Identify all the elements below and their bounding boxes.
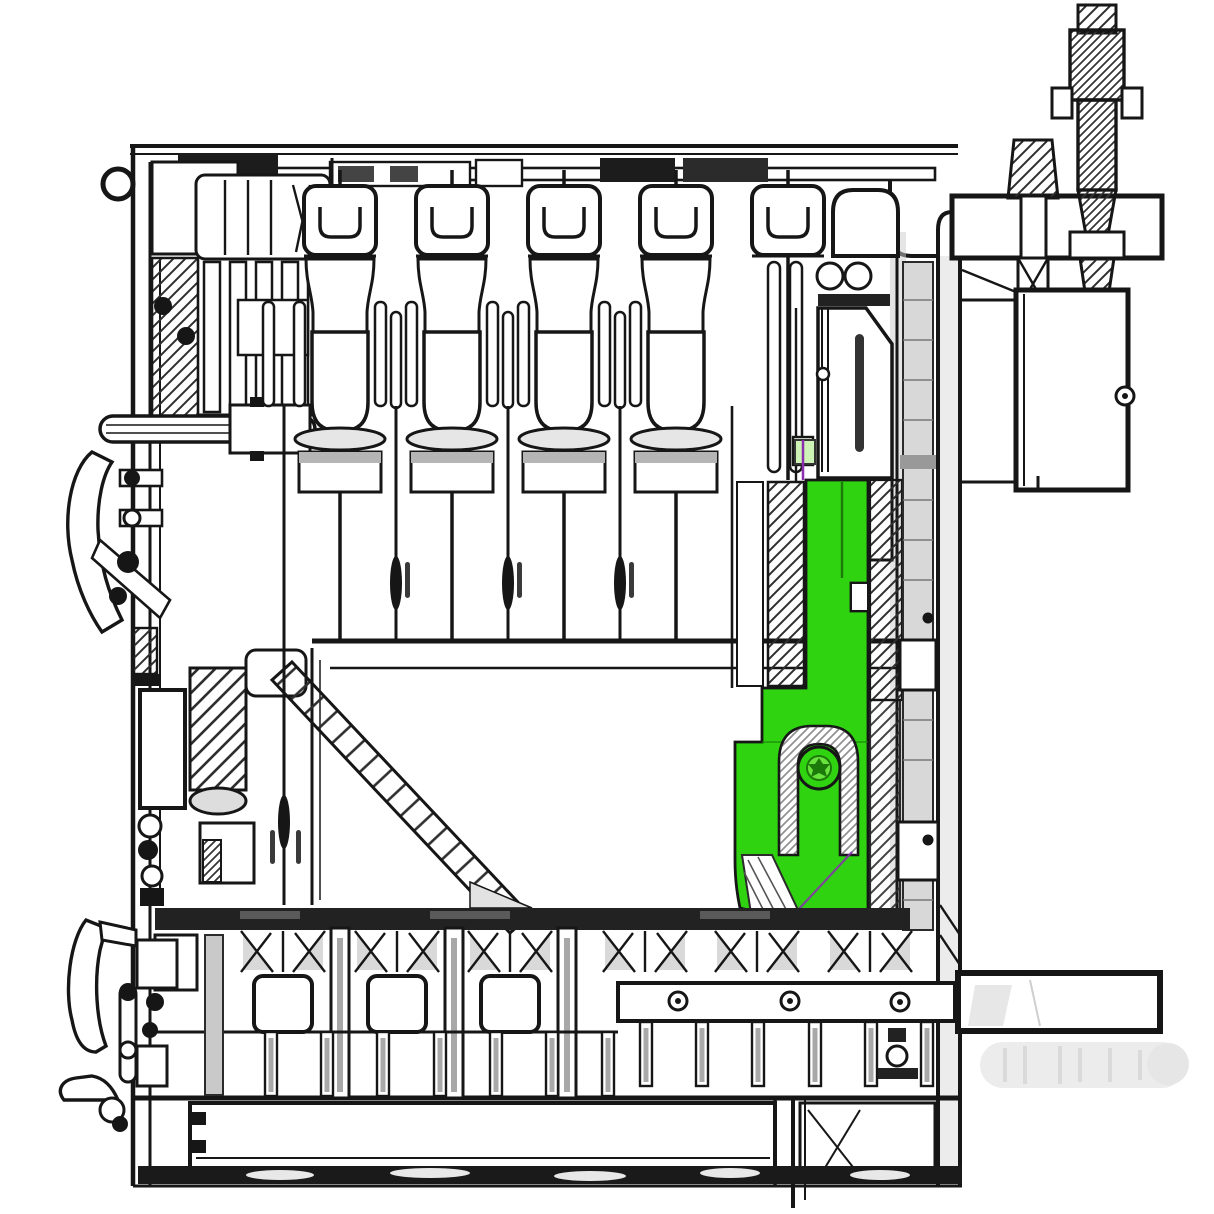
linkage-funnel xyxy=(468,931,552,972)
stud xyxy=(434,1032,446,1096)
stud xyxy=(865,1022,877,1086)
pivot-bolt xyxy=(798,747,840,789)
stud xyxy=(546,1032,558,1096)
valve-box xyxy=(254,976,312,1032)
lever-blade xyxy=(68,920,106,1052)
valve-box xyxy=(481,976,539,1032)
bottom-tray xyxy=(138,1098,962,1208)
stud xyxy=(490,1032,502,1096)
sectional-drawing xyxy=(0,0,1214,1214)
stud xyxy=(377,1032,389,1096)
stud xyxy=(921,1022,933,1086)
lifting-ring xyxy=(103,169,133,199)
ghost-watermark xyxy=(980,1042,1189,1088)
linkage-funnel xyxy=(603,931,687,972)
stud xyxy=(752,1022,764,1086)
upper-hand-lever xyxy=(68,452,170,632)
top-right-assembly xyxy=(938,5,1162,490)
right-guide-band xyxy=(898,262,938,930)
bottom-row xyxy=(155,908,955,1098)
linkage-funnel xyxy=(241,931,325,972)
stud xyxy=(265,1032,277,1096)
lever-blade-small xyxy=(60,1076,118,1100)
valve-box xyxy=(368,976,426,1032)
linkage-funnel xyxy=(715,931,799,972)
stud xyxy=(321,1032,333,1096)
linkage-funnel xyxy=(355,931,439,972)
highlight-tint-block xyxy=(795,440,815,464)
support-post xyxy=(558,928,576,1098)
cylinder-unit xyxy=(631,170,721,640)
cylinder-unit xyxy=(519,170,609,640)
drilled-bar xyxy=(618,983,955,1021)
diagram-canvas xyxy=(0,0,1214,1214)
stud xyxy=(640,1022,652,1086)
support-post xyxy=(445,928,463,1098)
linkage-funnel xyxy=(828,931,912,972)
stud xyxy=(696,1022,708,1086)
stud xyxy=(602,1032,614,1096)
mounting-bracket xyxy=(952,196,1162,258)
stud xyxy=(809,1022,821,1086)
notch xyxy=(851,583,868,611)
cylinder-unit xyxy=(407,170,497,640)
end-slab-unit xyxy=(817,190,898,306)
side-box xyxy=(962,270,1134,490)
